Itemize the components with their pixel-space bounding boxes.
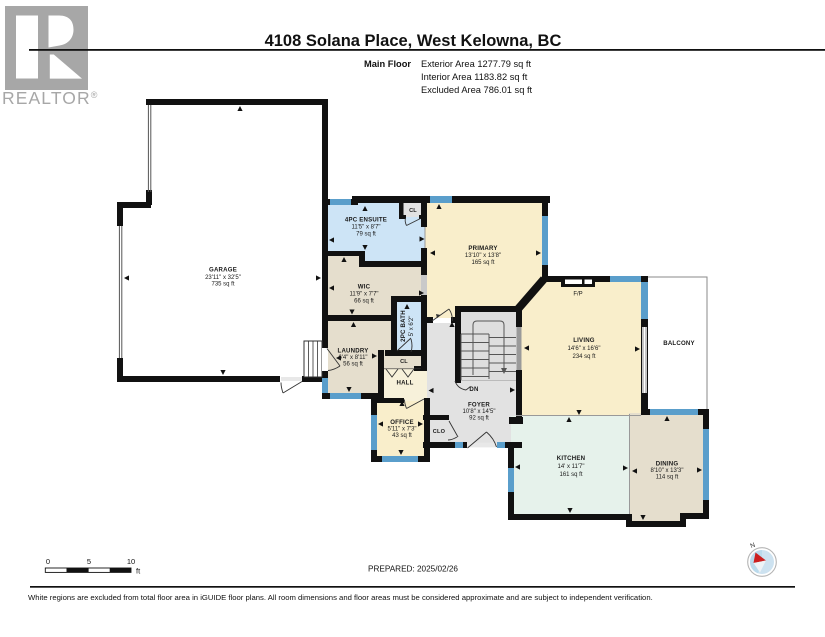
svg-text:BALCONY: BALCONY [663,340,695,347]
svg-text:10'8" x 14'5": 10'8" x 14'5" [463,409,496,415]
svg-text:5'11" x 7'3": 5'11" x 7'3" [387,427,416,433]
svg-text:Exterior Area 1277.79 sq ft: Exterior Area 1277.79 sq ft [421,59,531,69]
svg-text:REALTOR®: REALTOR® [2,88,98,108]
svg-text:4PC ENSUITE: 4PC ENSUITE [345,217,387,224]
svg-text:14' x 11'7": 14' x 11'7" [558,464,585,470]
svg-text:DN: DN [469,386,478,393]
svg-text:LIVING: LIVING [573,337,595,344]
svg-text:66 sq ft: 66 sq ft [354,299,374,305]
svg-text:14'6" x 16'6": 14'6" x 16'6" [568,346,601,352]
svg-text:0: 0 [46,557,50,566]
svg-text:CLO: CLO [433,429,446,435]
svg-text:FOYER: FOYER [468,402,490,409]
svg-text:13'10" x 13'8": 13'10" x 13'8" [465,253,501,259]
svg-text:CL: CL [409,208,417,214]
svg-text:LAUNDRY: LAUNDRY [338,348,369,355]
svg-text:2PC BATH: 2PC BATH [400,310,407,342]
svg-text:234 sq ft: 234 sq ft [572,354,595,360]
svg-text:735 sq ft: 735 sq ft [211,282,234,288]
svg-text:GARAGE: GARAGE [209,267,237,274]
svg-text:92 sq ft: 92 sq ft [469,416,489,422]
svg-text:WIC: WIC [358,284,371,291]
svg-text:DINING: DINING [656,461,679,468]
svg-text:F/P: F/P [573,292,582,298]
svg-text:Excluded Area 786.01 sq ft: Excluded Area 786.01 sq ft [421,85,533,95]
svg-text:White regions are excluded fro: White regions are excluded from total fl… [28,593,653,602]
svg-text:Main Floor: Main Floor [364,59,411,69]
svg-text:10: 10 [127,557,135,566]
svg-text:114 sq ft: 114 sq ft [656,475,679,481]
svg-text:161 sq ft: 161 sq ft [559,472,582,478]
svg-text:11'9" x 7'7": 11'9" x 7'7" [349,292,378,298]
svg-text:Interior Area 1183.82 sq ft: Interior Area 1183.82 sq ft [421,72,528,82]
svg-text:CL: CL [400,359,408,365]
svg-text:KITCHEN: KITCHEN [557,455,585,462]
svg-text:PRIMARY: PRIMARY [468,245,497,252]
svg-text:11'5" x 8'7": 11'5" x 8'7" [351,225,380,231]
svg-text:8'10" x 13'3": 8'10" x 13'3" [651,468,684,474]
svg-text:5' x 6'2": 5' x 6'2" [409,316,415,337]
svg-text:43 sq ft: 43 sq ft [392,433,412,439]
svg-text:OFFICE: OFFICE [390,419,414,426]
svg-text:6'4" x 8'11": 6'4" x 8'11" [338,355,367,361]
svg-text:PREPARED: 2025/02/26: PREPARED: 2025/02/26 [368,565,458,574]
svg-text:HALL: HALL [396,380,413,387]
svg-text:165 sq ft: 165 sq ft [471,260,494,266]
svg-text:79 sq ft: 79 sq ft [356,231,376,237]
svg-text:23'11" x 32'5": 23'11" x 32'5" [205,275,241,281]
svg-text:5: 5 [87,557,91,566]
svg-text:56 sq ft: 56 sq ft [343,362,363,368]
svg-text:4108 Solana Place, West Kelown: 4108 Solana Place, West Kelowna, BC [265,32,562,50]
